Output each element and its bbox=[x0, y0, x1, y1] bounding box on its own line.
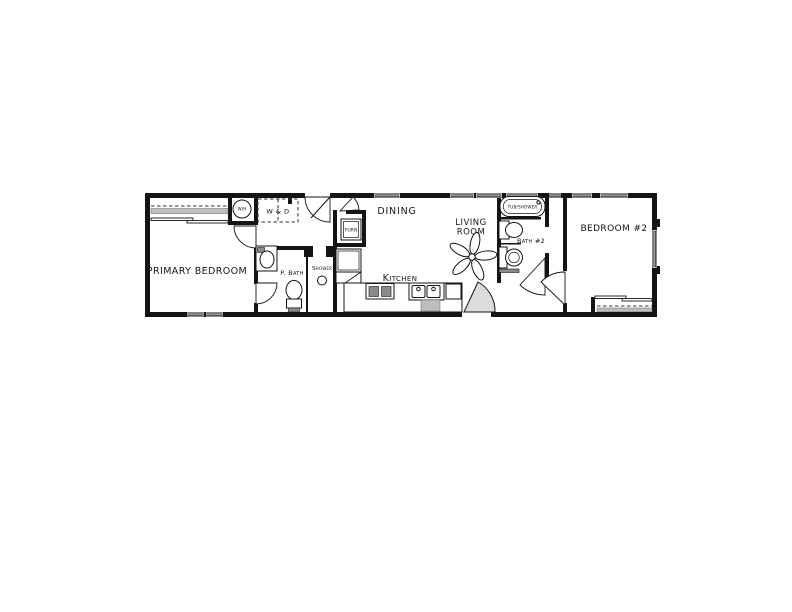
window bbox=[206, 313, 223, 317]
closet-shelf bbox=[597, 308, 652, 312]
sink-cabinet bbox=[421, 300, 440, 311]
primary-bath-door-swing bbox=[256, 283, 277, 304]
fixture-label-furnace: FURN bbox=[345, 228, 358, 234]
room-label-bath2: Bath #2 bbox=[517, 237, 545, 245]
closet-sliding-door bbox=[622, 299, 652, 302]
closet-sliding-door bbox=[595, 296, 626, 299]
bath2-toilet-icon bbox=[499, 247, 523, 273]
bath2-door-swing bbox=[520, 258, 545, 295]
window bbox=[187, 313, 204, 317]
range-icon bbox=[366, 284, 394, 300]
fixture-label-water-heater: W/H bbox=[238, 207, 247, 212]
room-label-kitchen: Kitchen bbox=[383, 273, 418, 284]
entry-door-swing bbox=[464, 282, 495, 312]
refrigerator-icon bbox=[336, 249, 361, 272]
room-label-shower: Shower bbox=[312, 266, 332, 272]
closet-shelf bbox=[151, 209, 228, 214]
primary-bath-toilet-icon bbox=[286, 281, 302, 313]
window bbox=[653, 230, 657, 268]
shower-drain-icon bbox=[318, 276, 327, 285]
room-label-living-line1: LIVING bbox=[455, 218, 487, 228]
primary-bedroom-door-swing bbox=[234, 226, 256, 248]
bedroom2-closet bbox=[595, 296, 652, 312]
primary-bath-sink-icon bbox=[256, 246, 277, 271]
window bbox=[374, 194, 400, 198]
floor-plan-page: PRIMARY BEDROOM DINING Kitchen LIVING RO… bbox=[0, 0, 792, 612]
window bbox=[600, 194, 628, 198]
floor-plan-drawing: PRIMARY BEDROOM DINING Kitchen LIVING RO… bbox=[0, 0, 792, 612]
room-label-living-line2: ROOM bbox=[457, 228, 486, 238]
room-label-primary-bath: P. Bath bbox=[280, 269, 303, 277]
closet-sliding-door bbox=[187, 221, 228, 224]
furnace-door-swing bbox=[340, 197, 359, 211]
dishwasher-icon bbox=[446, 284, 461, 299]
room-label-dining: DINING bbox=[377, 206, 416, 217]
fixture-label-tub-shower: TUB/SHOWER bbox=[507, 205, 538, 210]
room-label-primary-bedroom: PRIMARY BEDROOM bbox=[147, 266, 247, 277]
room-label-bedroom2: BEDROOM #2 bbox=[580, 224, 647, 234]
entry-door-opening bbox=[462, 312, 491, 317]
window bbox=[549, 194, 561, 198]
window bbox=[450, 194, 474, 198]
window bbox=[572, 194, 592, 198]
primary-closet bbox=[151, 206, 228, 223]
window bbox=[476, 194, 502, 198]
fixture-label-washer-dryer: W & D bbox=[266, 208, 289, 216]
